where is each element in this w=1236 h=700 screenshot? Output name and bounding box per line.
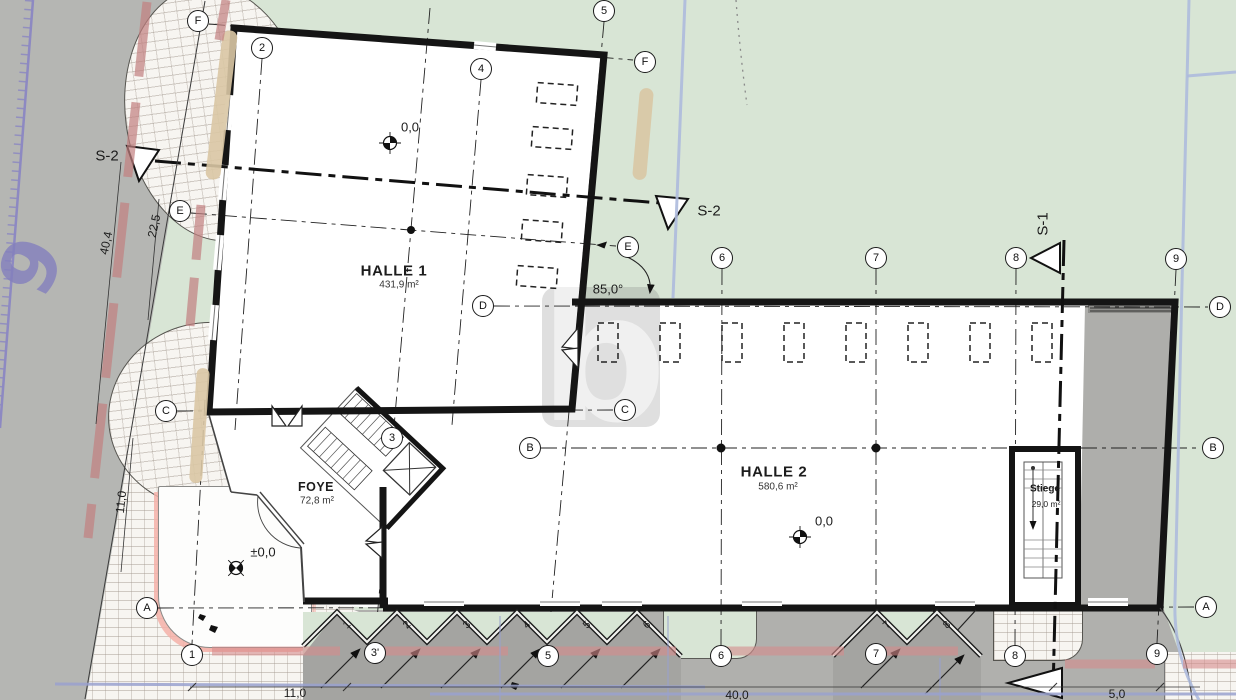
grid-bubble-F-left: F [187, 10, 209, 32]
grid-bubble-6-bottom: 6 [710, 645, 732, 667]
grid-bubble-4-top: 4 [470, 58, 492, 80]
level-halle2: 0,0 [815, 514, 833, 529]
parking-4: 4 [521, 619, 534, 632]
grid-bubble-F-right: F [634, 51, 656, 73]
grid-bubble-E-left: E [169, 200, 191, 222]
grid-bubble-A-left: A [136, 597, 158, 619]
grid-bubble-5-bottom: 5 [537, 645, 559, 667]
grid-bubble-B-left: B [519, 437, 541, 459]
grid-bubble-A-right: A [1195, 596, 1217, 618]
room-halle2-name: HALLE 2 [741, 464, 808, 481]
dim-40-0-bottom: 40,0 [725, 688, 748, 700]
labels-layer: HALLE 1431,9 m²HALLE 2580,6 m²FOYE72,8 m… [0, 0, 1236, 700]
grid-bubble-C-left: C [155, 400, 177, 422]
level-halle1: 0,0 [401, 120, 419, 135]
parking-1: 1 [341, 619, 354, 632]
room-foyer-area: 72,8 m² [300, 496, 334, 507]
grid-bubble-6-top: 6 [711, 247, 733, 269]
grid-bubble-7-bottom: 7 [865, 643, 887, 665]
room-halle1-name: HALLE 1 [361, 263, 428, 280]
dim-11-0-left: 11,0 [113, 490, 129, 514]
dim-11-0-bottom: 11,0 [284, 686, 306, 700]
site-plan-canvas: b [0, 0, 1236, 700]
room-stiege-name: Stiege [1030, 484, 1060, 495]
parking-6: 6 [641, 619, 654, 632]
grid-bubble-8-top: 8 [1005, 247, 1027, 269]
grid-bubble-1-bottom: 1 [181, 644, 203, 666]
grid-bubble-5-top: 5 [593, 0, 615, 22]
room-stiege-area: 29,0 m² [1032, 499, 1061, 509]
room-foyer-name: FOYE [298, 480, 334, 494]
dim-40-4: 40,4 [97, 230, 116, 256]
grid-bubble-3-mid: 3 [381, 427, 403, 449]
parking-3: 3 [461, 619, 474, 632]
grid-bubble-9-top: 9 [1165, 248, 1187, 270]
grid-bubble-2-top: 2 [251, 37, 273, 59]
grid-bubble-D-left: D [472, 295, 494, 317]
parking-2: 2 [401, 619, 414, 632]
section-s2-right: S-2 [697, 203, 720, 220]
angle-label: 85,0° [593, 282, 624, 297]
room-halle2-area: 580,6 m² [758, 482, 797, 493]
grid-bubble-7-top: 7 [865, 247, 887, 269]
grid-bubble-B-right: B [1202, 437, 1224, 459]
level-plaza: ±0,0 [250, 545, 275, 560]
parking-5: 5 [581, 619, 594, 632]
dim-22-5: 22,5 [145, 213, 164, 239]
grid-bubble-E-right: E [617, 236, 639, 258]
room-halle1-area: 431,9 m² [379, 280, 418, 291]
section-s1-top: S-1 [1035, 212, 1052, 235]
grid-bubble-9-bottom: 9 [1146, 643, 1168, 665]
grid-bubble-C-right: C [614, 399, 636, 421]
dim-5-0-bottom: 5,0 [1109, 687, 1126, 700]
grid-bubble-D-right: D [1209, 296, 1231, 318]
grid-bubble-3p-bottom: 3' [364, 642, 386, 664]
grid-bubble-8-bottom: 8 [1004, 645, 1026, 667]
parking-8: 8 [941, 619, 954, 632]
parking-7: 7 [881, 619, 894, 632]
section-s2-left: S-2 [95, 148, 118, 165]
